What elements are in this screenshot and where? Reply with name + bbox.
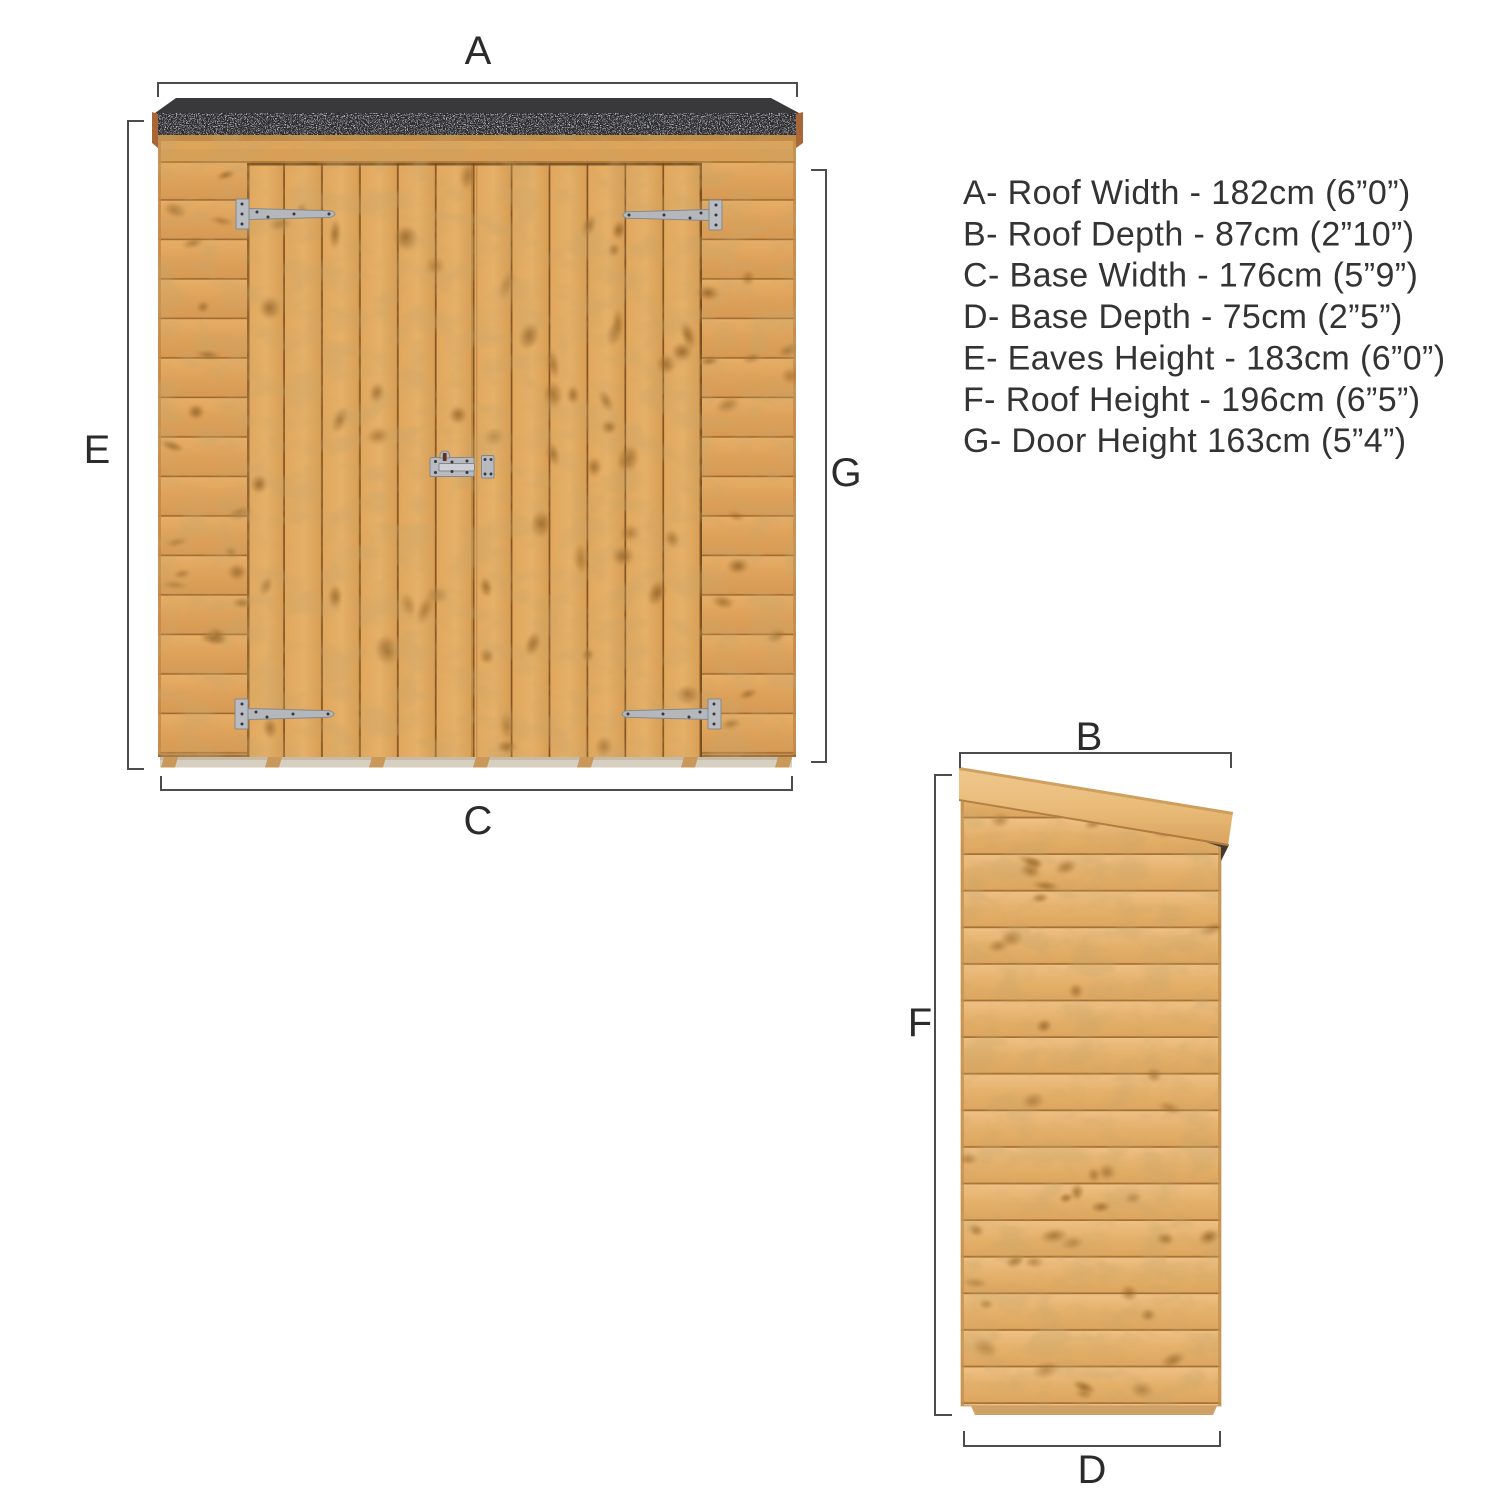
svg-text:C: C: [464, 799, 493, 843]
svg-text:A- Roof Width - 182cm (6”0”): A- Roof Width - 182cm (6”0”): [963, 174, 1411, 212]
svg-text:A: A: [465, 29, 492, 73]
svg-text:F: F: [908, 1001, 932, 1045]
svg-text:G: G: [830, 451, 861, 495]
svg-text:F- Roof Height - 196cm (6”5”): F- Roof Height - 196cm (6”5”): [963, 381, 1421, 419]
svg-text:B- Roof Depth - 87cm (2”10”): B- Roof Depth - 87cm (2”10”): [963, 215, 1414, 253]
svg-text:E- Eaves Height - 183cm (6”0”): E- Eaves Height - 183cm (6”0”): [963, 339, 1446, 377]
svg-text:D- Base Depth - 75cm (2”5”): D- Base Depth - 75cm (2”5”): [963, 298, 1403, 336]
svg-text:G- Door Height 163cm (5”4”): G- Door Height 163cm (5”4”): [963, 422, 1407, 460]
svg-text:B: B: [1076, 715, 1103, 759]
svg-text:C- Base Width - 176cm (5”9”): C- Base Width - 176cm (5”9”): [963, 257, 1418, 295]
svg-text:D: D: [1078, 1448, 1107, 1492]
svg-text:E: E: [84, 428, 111, 472]
